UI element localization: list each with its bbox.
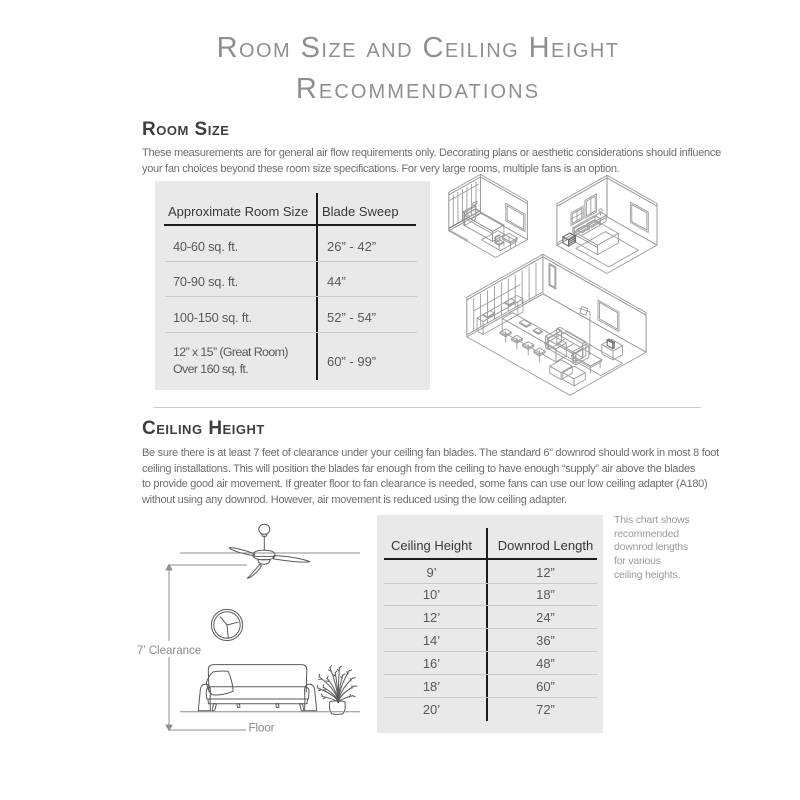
svg-text:7’ Clearance: 7’ Clearance <box>137 645 201 657</box>
svg-text:Floor: Floor <box>249 721 275 735</box>
